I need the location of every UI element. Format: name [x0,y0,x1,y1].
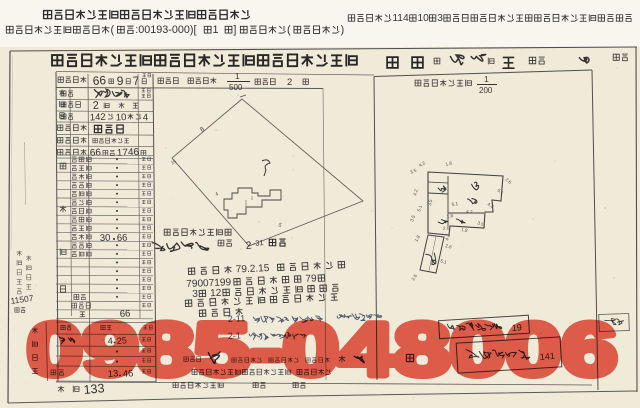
svg-text:10: 10 [417,13,429,24]
svg-text:]: ] [233,24,236,36]
svg-text:79: 79 [305,273,317,284]
svg-text:-31: -31 [252,238,264,248]
svg-text:2.6: 2.6 [443,225,450,231]
svg-text:142: 142 [90,112,106,124]
svg-text:66: 66 [117,232,128,244]
svg-text:7: 7 [132,74,140,88]
svg-text:4.2: 4.2 [466,209,473,215]
svg-text:4: 4 [143,112,149,123]
svg-text:66: 66 [92,73,107,88]
svg-text:10: 10 [116,112,127,124]
svg-text:0985-048006: 0985-048006 [27,308,617,391]
svg-text:1: 1 [213,24,219,36]
svg-text:3: 3 [437,13,443,24]
svg-text:9: 9 [116,74,124,88]
svg-text:79.2.15: 79.2.15 [236,263,271,275]
svg-text:30: 30 [100,232,111,244]
svg-text:2: 2 [245,240,252,252]
svg-text:114: 114 [392,13,409,24]
svg-text:12: 12 [210,288,222,299]
svg-text:): ) [341,24,345,36]
svg-text:2: 2 [287,77,292,88]
svg-text:1746: 1746 [117,147,140,159]
svg-text:2: 2 [92,100,99,112]
svg-text:200: 200 [479,86,493,95]
svg-text:3: 3 [192,289,198,300]
svg-text::00193-000)[: :00193-000)[ [135,24,196,36]
svg-text:1: 1 [235,71,240,81]
svg-text:(: ( [287,24,291,36]
svg-text:(: ( [110,24,114,36]
svg-text:500: 500 [229,83,243,92]
svg-text:1: 1 [484,74,489,84]
